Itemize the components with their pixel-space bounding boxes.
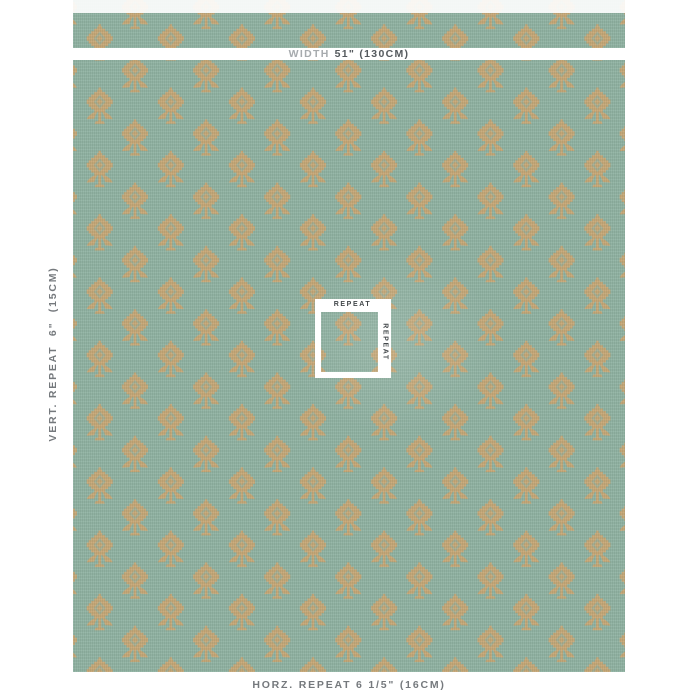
repeat-marker-square: REPEAT REPEAT <box>315 299 391 378</box>
horizontal-repeat-label: HORZ. REPEAT 6 1/5" (16CM) <box>252 679 445 691</box>
repeat-marker-side-label: REPEAT <box>381 323 388 360</box>
fabric-detail-view: WIDTH 51" (130CM) REPEAT REPEAT VERT. RE… <box>0 0 700 700</box>
width-value: 51" (130CM) <box>335 48 410 60</box>
repeat-marker-top-label: REPEAT <box>317 301 388 308</box>
top-fade-strip <box>73 0 625 13</box>
fabric-swatch: WIDTH 51" (130CM) REPEAT REPEAT <box>73 0 625 672</box>
repeat-marker-side-band: REPEAT <box>378 312 391 372</box>
width-measure-bar: WIDTH 51" (130CM) <box>73 48 625 60</box>
vertical-repeat-label: VERT. REPEAT 6" (15CM) <box>47 266 59 441</box>
width-label: WIDTH <box>289 48 330 60</box>
